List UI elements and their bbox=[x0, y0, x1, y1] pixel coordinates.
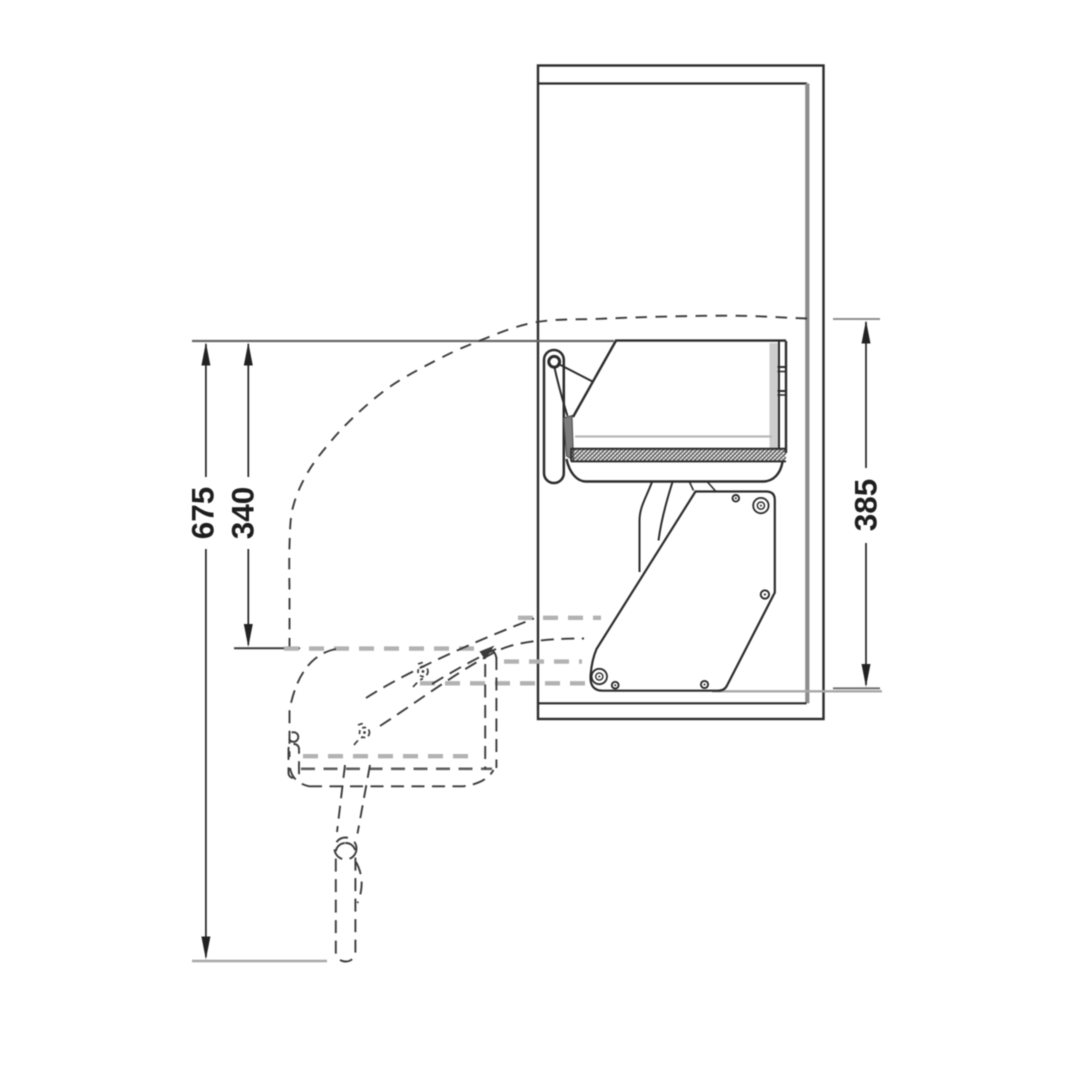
svg-text:385: 385 bbox=[848, 479, 884, 532]
svg-text:675: 675 bbox=[185, 487, 221, 540]
svg-text:340: 340 bbox=[225, 487, 261, 540]
